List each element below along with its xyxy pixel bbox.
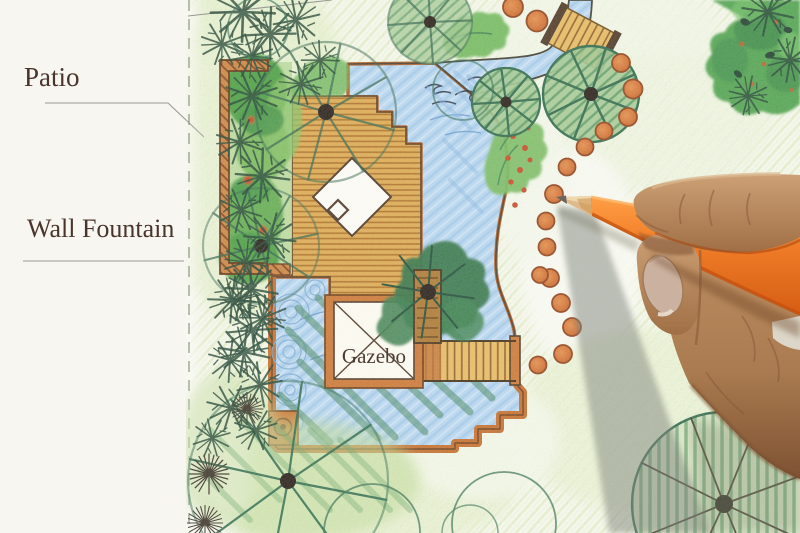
svg-text:Wall Fountain: Wall Fountain	[27, 214, 174, 243]
svg-text:Patio: Patio	[24, 62, 80, 92]
